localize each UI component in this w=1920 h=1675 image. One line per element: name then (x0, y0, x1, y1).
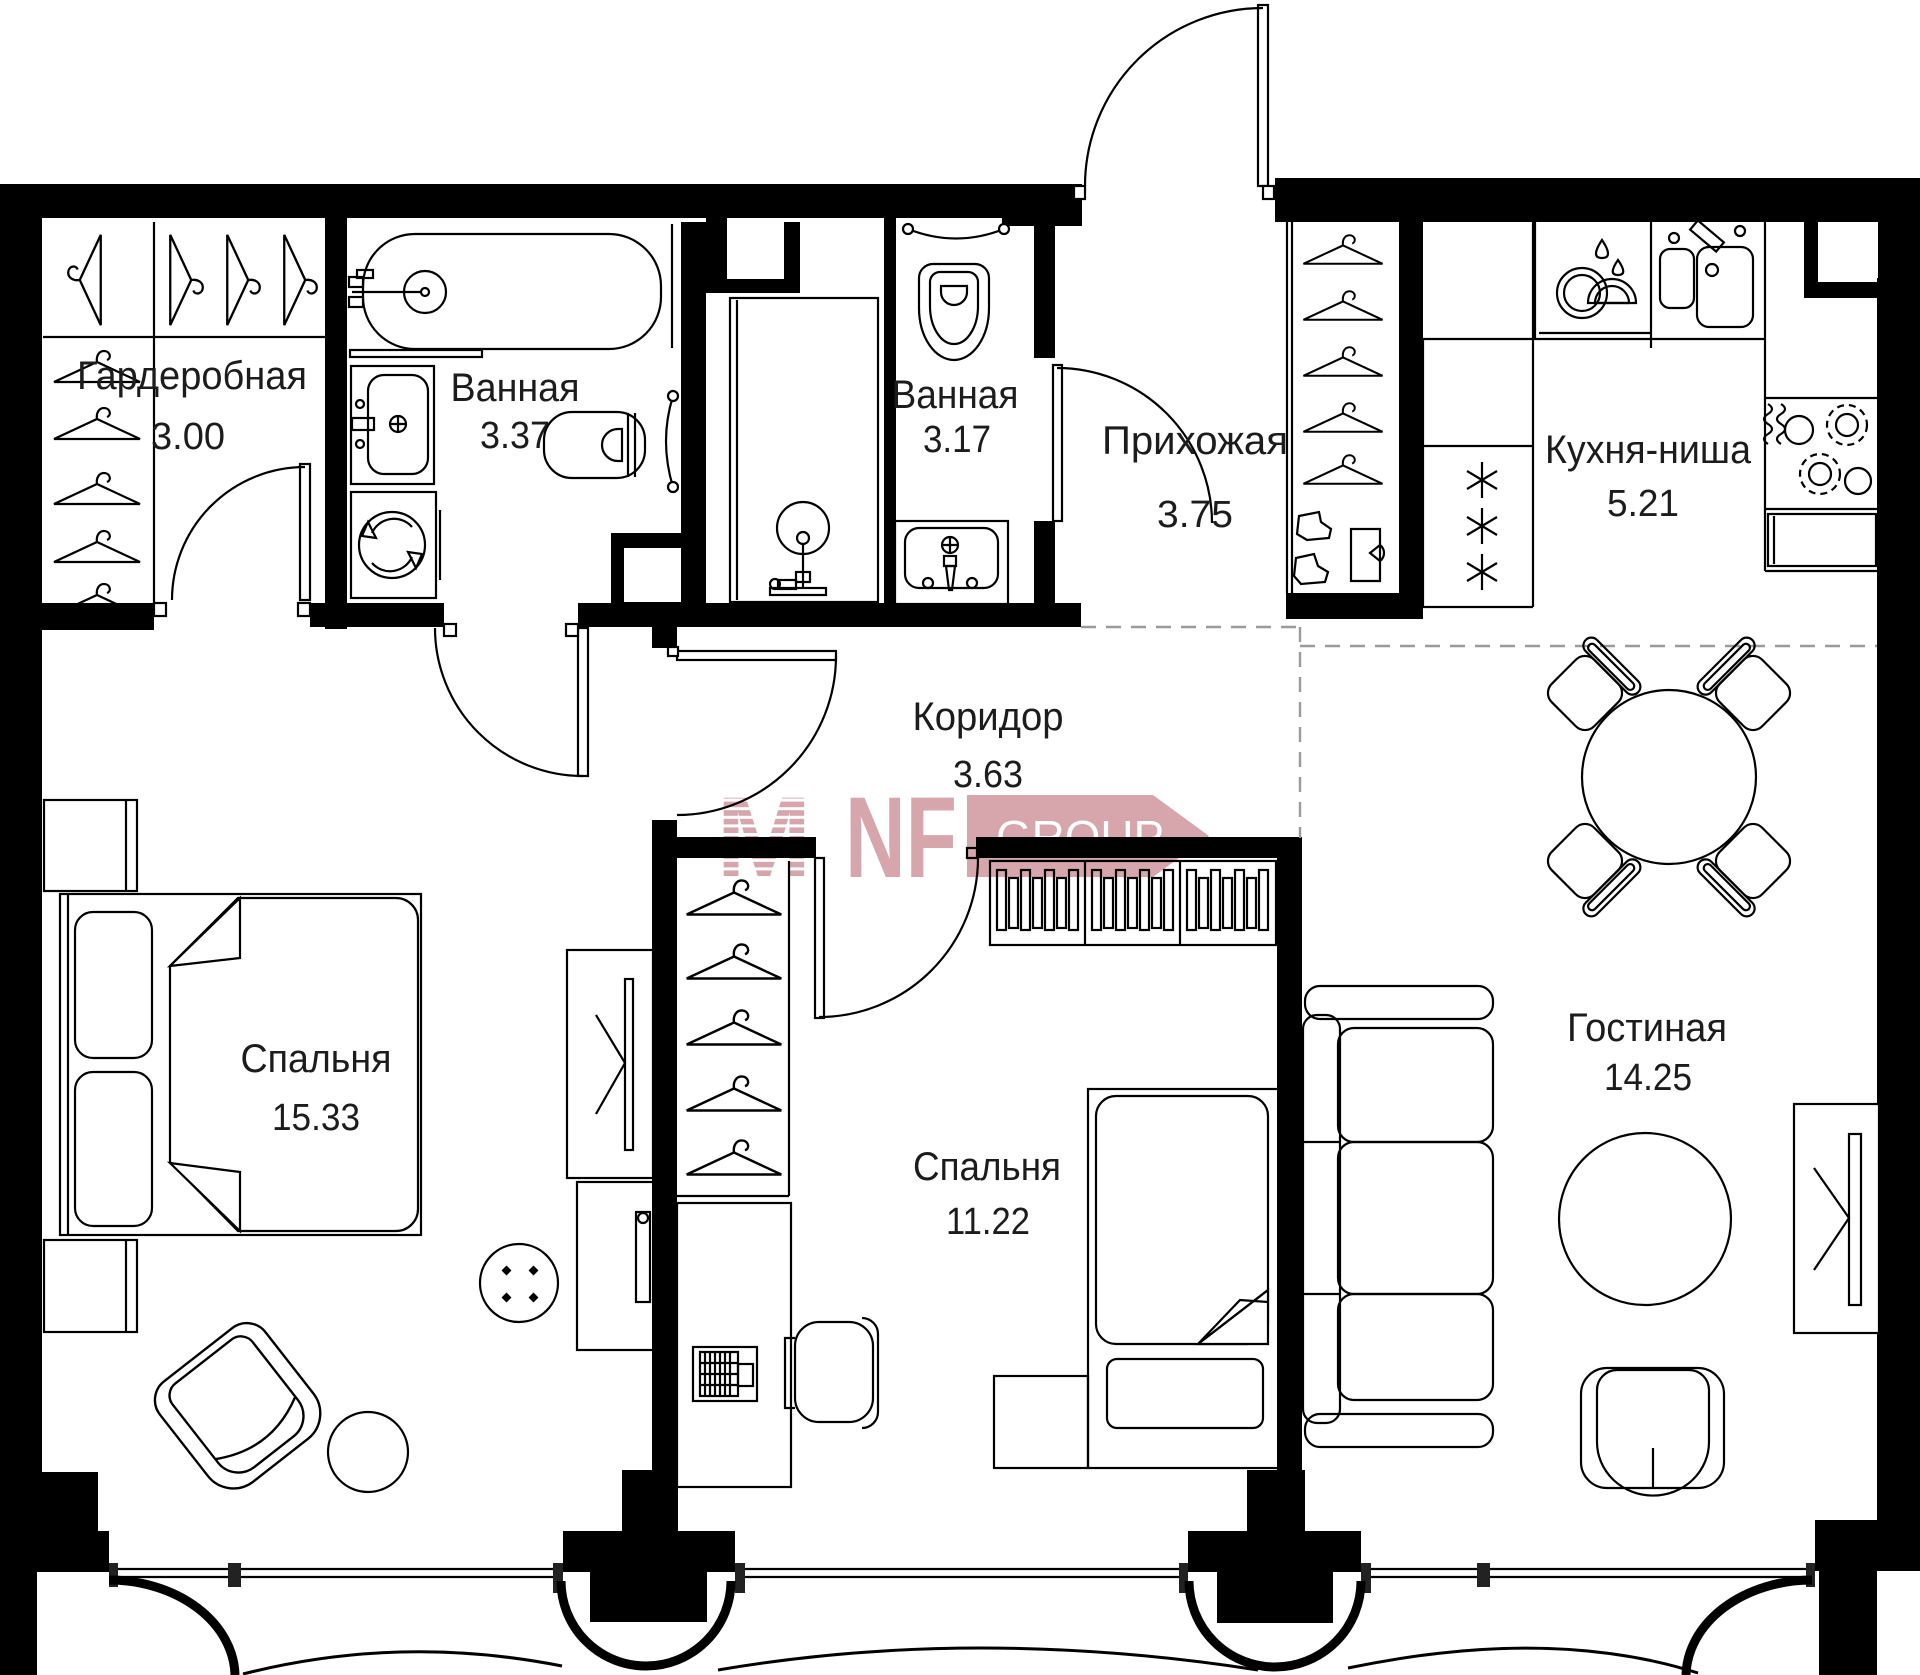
svg-text:Прихожая: Прихожая (1102, 419, 1288, 463)
svg-text:3.37: 3.37 (480, 415, 550, 457)
svg-text:15.33: 15.33 (272, 1097, 360, 1139)
svg-text:14.25: 14.25 (1604, 1057, 1692, 1099)
svg-text:5.21: 5.21 (1607, 483, 1679, 525)
svg-text:Кухня-ниша: Кухня-ниша (1545, 428, 1752, 472)
svg-text:11.22: 11.22 (946, 1201, 1030, 1243)
svg-text:Спальня: Спальня (913, 1145, 1061, 1189)
svg-text:Коридор: Коридор (913, 695, 1064, 739)
svg-text:Гостиная: Гостиная (1567, 1006, 1727, 1050)
svg-text:3.17: 3.17 (923, 419, 991, 461)
svg-text:Гардеробная: Гардеробная (77, 354, 307, 398)
svg-text:3.75: 3.75 (1157, 494, 1233, 536)
svg-text:3.63: 3.63 (953, 754, 1023, 796)
svg-text:Спальня: Спальня (241, 1037, 392, 1081)
svg-text:NF: NF (845, 774, 957, 902)
svg-text:Ванная: Ванная (892, 373, 1019, 417)
svg-text:3.00: 3.00 (151, 416, 225, 458)
svg-text:Ванная: Ванная (451, 366, 580, 410)
